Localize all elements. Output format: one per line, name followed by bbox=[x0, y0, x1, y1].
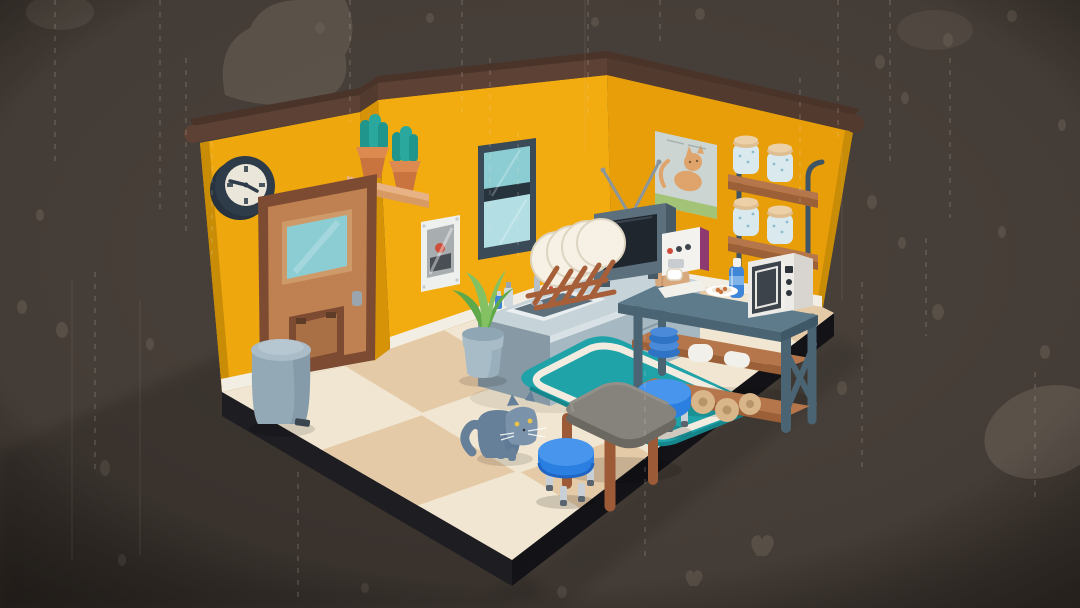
vignette bbox=[0, 0, 1080, 608]
game-viewport bbox=[0, 0, 1080, 608]
scene-canvas bbox=[0, 0, 1080, 608]
